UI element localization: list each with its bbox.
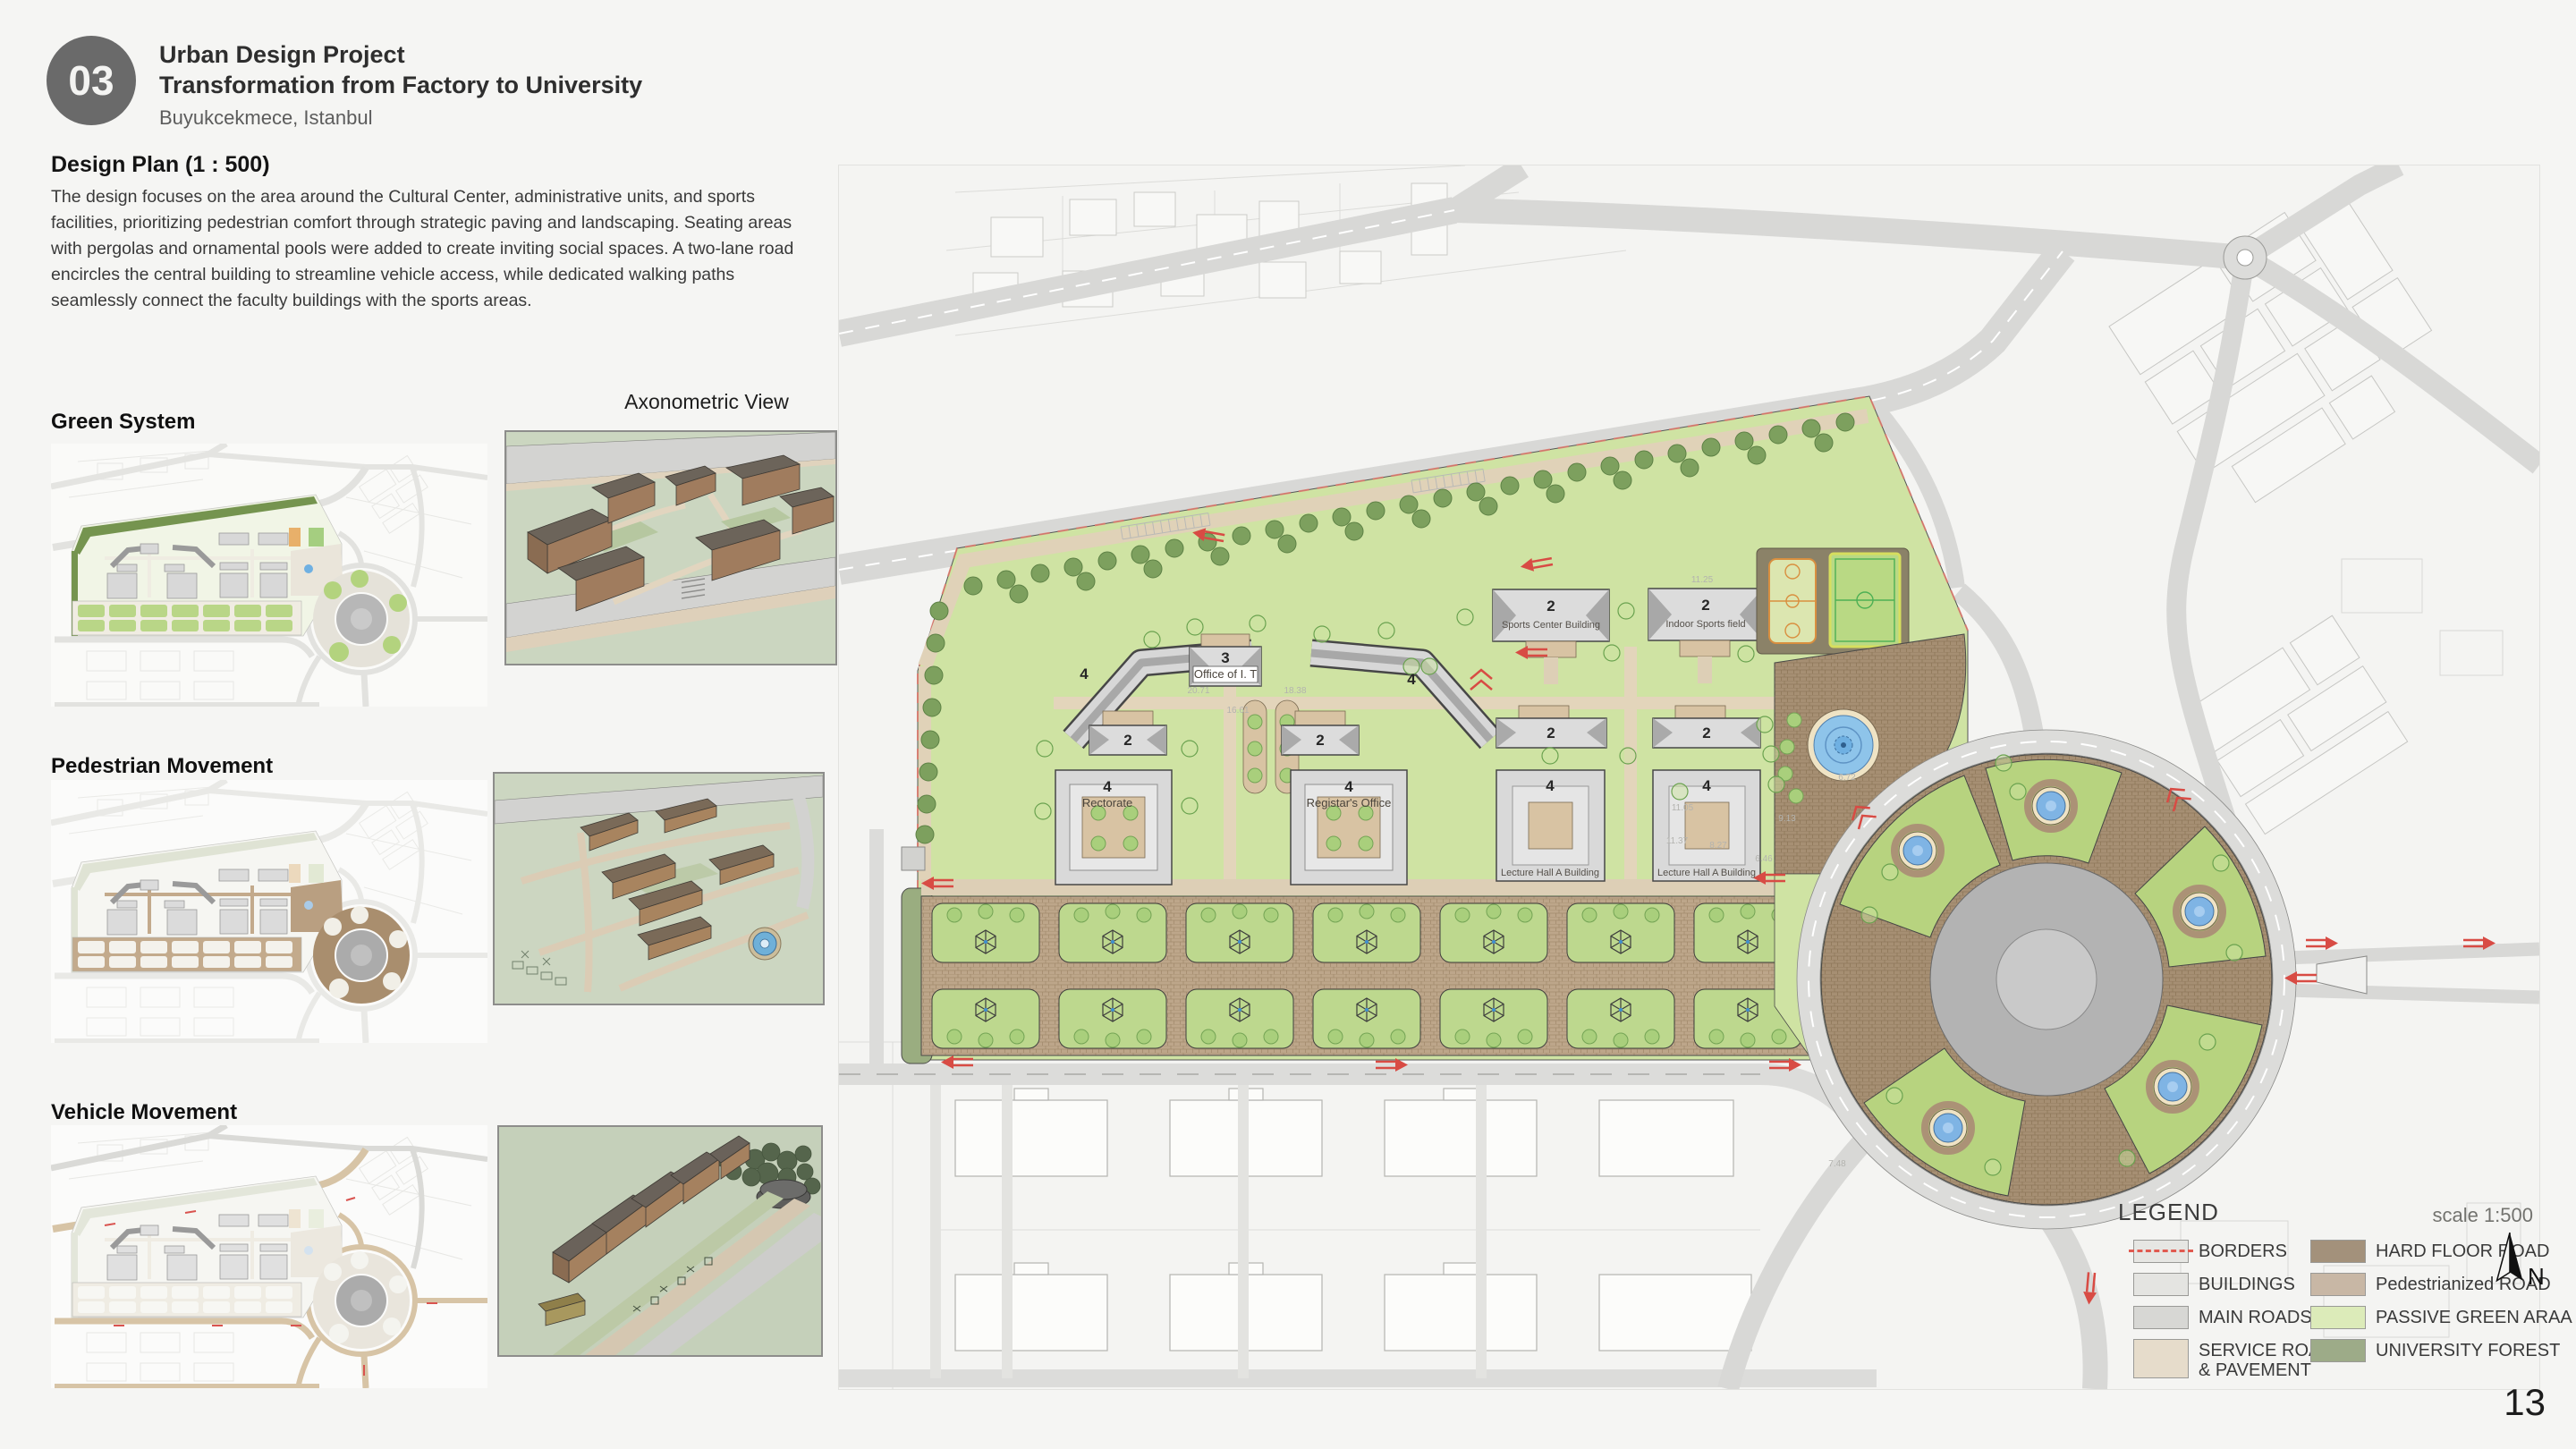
registrar-storeys: 4 <box>1344 778 1353 795</box>
project-title: Urban Design Project <box>159 39 642 70</box>
design-plan-heading: Design Plan (1 : 500) <box>51 152 270 178</box>
vehicle-movement-diagram <box>51 1125 487 1388</box>
rectorate-label: Rectorate <box>1082 796 1132 809</box>
legend-label-main-roads: MAIN ROADS <box>2199 1308 2312 1328</box>
indoor-sports-storeys: 2 <box>1701 597 1709 614</box>
indoor-sports-label: Indoor Sports field <box>1665 619 1745 630</box>
bar-right-storeys: 2 <box>1316 732 1324 749</box>
green-system-label: Green System <box>51 410 195 435</box>
svg-text:16.61: 16.61 <box>1226 706 1249 716</box>
pedestrian-movement-diagram <box>51 780 487 1043</box>
north-arrow-icon <box>2490 1231 2529 1286</box>
svg-text:11.05: 11.05 <box>1672 803 1694 813</box>
north-label: N <box>2528 1263 2545 1291</box>
site-plan-drawing: 4 4 3 Office of I. T 2 2 4 Rectorate 4 R… <box>839 165 2539 1389</box>
lecture-hall-right-label: Lecture Hall A Building <box>1657 868 1756 878</box>
svg-text:18.38: 18.38 <box>1284 686 1306 696</box>
svg-text:11.25: 11.25 <box>1691 575 1714 585</box>
page-number: 13 <box>2462 1381 2546 1424</box>
legend-swatch-hard-floor <box>2310 1240 2366 1263</box>
wing-left-storeys: 4 <box>1080 665 1089 682</box>
sports-center-storeys: 2 <box>1546 597 1555 614</box>
rectorate-storeys: 4 <box>1103 778 1112 795</box>
svg-text:7.48: 7.48 <box>1828 1159 1846 1169</box>
legend-label-passive-green: PASSIVE GREEN ARAA <box>2376 1308 2572 1328</box>
pergola-garden-strip <box>902 879 1809 1063</box>
presentation-board: 03 Urban Design Project Transformation f… <box>0 0 2576 1449</box>
legend-label-university-forest: UNIVERSITY FOREST <box>2376 1341 2560 1361</box>
legend-swatch-buildings <box>2133 1273 2189 1296</box>
axonometric-render-1 <box>504 430 837 665</box>
axonometric-render-3 <box>497 1125 823 1357</box>
scale-note: scale 1:500 <box>2361 1204 2533 1227</box>
wing-right-storeys: 4 <box>1407 671 1416 688</box>
legend-label-buildings: BUILDINGS <box>2199 1275 2295 1295</box>
legend-swatch-passive-green <box>2310 1306 2366 1329</box>
utility-building <box>902 847 925 870</box>
legend-label-service-roads-2: & PAVEMENT <box>2199 1360 2311 1381</box>
legend-swatch-service-roads <box>2133 1339 2189 1378</box>
vehicle-movement-label: Vehicle Movement <box>51 1100 237 1125</box>
office-it-storeys: 3 <box>1221 649 1229 666</box>
bar-left-storeys: 2 <box>1123 732 1131 749</box>
project-location: Buyukcekmece, Istanbul <box>159 106 642 130</box>
svg-text:6.46: 6.46 <box>1755 854 1773 864</box>
design-plan-description: The design focuses on the area around th… <box>51 184 826 314</box>
svg-text:9.13: 9.13 <box>1778 814 1796 824</box>
office-it-label: Office of I. T <box>1194 667 1257 681</box>
header-titles: Urban Design Project Transformation from… <box>159 39 642 130</box>
project-subtitle: Transformation from Factory to Universit… <box>159 70 642 100</box>
registrar-label: Registar's Office <box>1307 796 1392 809</box>
lecture-hall-left-label: Lecture Hall A Building <box>1501 868 1599 878</box>
svg-text:8.27: 8.27 <box>1709 841 1727 851</box>
lecture-bar-left-storeys: 2 <box>1546 724 1555 741</box>
axonometric-view-label: Axonometric View <box>572 390 841 414</box>
svg-text:20.71: 20.71 <box>1187 686 1209 696</box>
lecture-bar-right-storeys: 2 <box>1702 724 1710 741</box>
legend-swatch-borders <box>2133 1240 2189 1263</box>
site-plan: 4 4 3 Office of I. T 2 2 4 Rectorate 4 R… <box>838 165 2540 1390</box>
legend-swatch-university-forest <box>2310 1339 2366 1362</box>
central-roundabout <box>1797 730 2296 1229</box>
sports-center-label: Sports Center Building <box>1502 620 1600 631</box>
lecture-hall-left-storeys: 4 <box>1546 777 1555 794</box>
svg-text:6.72: 6.72 <box>1838 773 1856 783</box>
project-number-badge: 03 <box>47 36 136 125</box>
legend-title: LEGEND <box>2118 1199 2219 1226</box>
axonometric-render-2 <box>493 772 825 1005</box>
svg-text:11.37: 11.37 <box>1666 836 1689 846</box>
legend-label-borders: BORDERS <box>2199 1241 2287 1262</box>
green-system-diagram <box>51 444 487 707</box>
lecture-hall-right-storeys: 4 <box>1702 777 1711 794</box>
legend-swatch-pedestrianized <box>2310 1273 2366 1296</box>
legend-swatch-main-roads <box>2133 1306 2189 1329</box>
pedestrian-movement-label: Pedestrian Movement <box>51 754 273 779</box>
